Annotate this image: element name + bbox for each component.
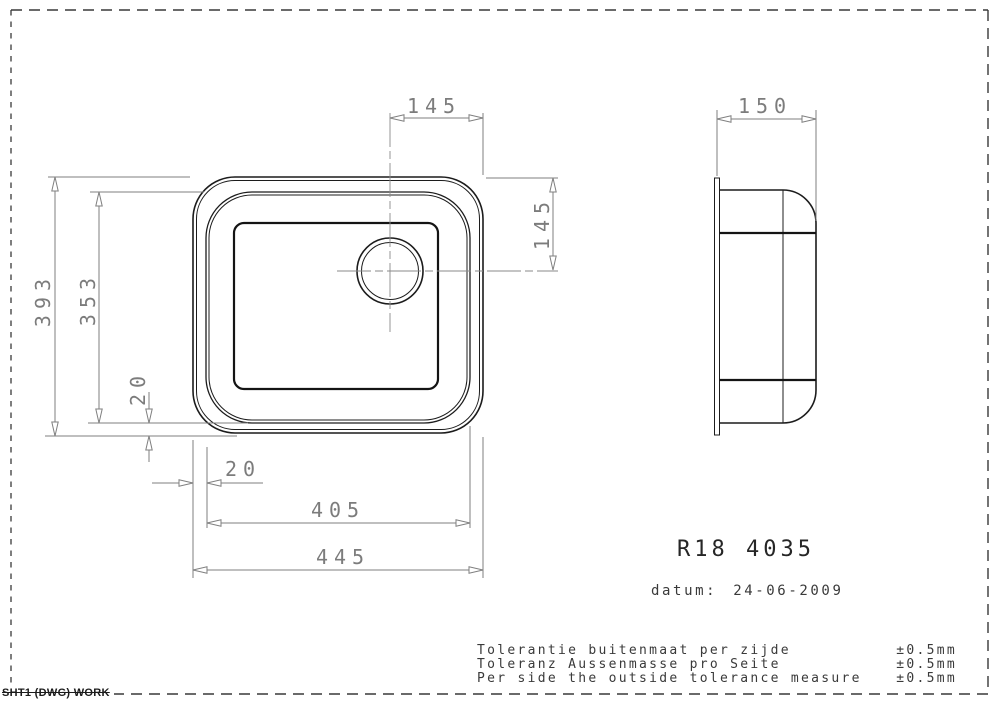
model-number: R18 4035	[677, 537, 815, 562]
tolerance-row: Toleranz Aussenmasse pro Seite ±0.5mm	[477, 658, 957, 672]
dim-bowl-height: 353	[76, 192, 248, 423]
drawing-sheet: 145 150 145	[0, 0, 1000, 707]
dim-drain-offset-top: 145	[486, 178, 558, 270]
date-value: 24-06-2009	[733, 583, 843, 599]
tolerance-text: Per side the outside tolerance measure	[477, 672, 862, 686]
dim-text: 445	[316, 545, 370, 569]
tolerance-value: ±0.5mm	[896, 658, 957, 672]
dim-text: 150	[738, 94, 792, 118]
tolerance-text: Toleranz Aussenmasse pro Seite	[477, 658, 781, 672]
dim-text: 405	[311, 498, 365, 522]
side-view	[715, 178, 817, 435]
dim-rim-bottom: 20	[126, 370, 152, 462]
tolerance-notes: Tolerantie buitenmaat per zijde ±0.5mm T…	[477, 644, 957, 686]
dim-text: 393	[31, 273, 55, 327]
dim-text: 20	[225, 457, 261, 481]
tolerance-value: ±0.5mm	[896, 672, 957, 686]
plot-stamp: SHT1 (DWG) WORK	[2, 687, 110, 699]
top-view	[193, 113, 558, 433]
tolerance-row: Tolerantie buitenmaat per zijde ±0.5mm	[477, 644, 957, 658]
date-label: datum:	[651, 583, 717, 599]
tolerance-value: ±0.5mm	[896, 644, 957, 658]
rim-flange	[715, 178, 720, 435]
cad-drawing: 145 150 145	[0, 0, 1000, 707]
dimension-annotations: 145 150 145	[31, 94, 816, 578]
date-row: datum:24-06-2009	[651, 583, 843, 599]
dim-text: 145	[407, 94, 461, 118]
tolerance-row: Per side the outside tolerance measure ±…	[477, 672, 957, 686]
tolerance-text: Tolerantie buitenmaat per zijde	[477, 644, 791, 658]
dim-text: 353	[76, 272, 100, 326]
dim-drain-offset-right: 145	[390, 94, 483, 175]
dim-text: 145	[530, 196, 554, 250]
dim-depth: 150	[717, 94, 816, 221]
dim-text: 20	[126, 370, 150, 406]
outer-edge	[193, 177, 483, 433]
bowl-opening-edge-inner	[209, 195, 467, 420]
side-profile	[720, 190, 817, 423]
